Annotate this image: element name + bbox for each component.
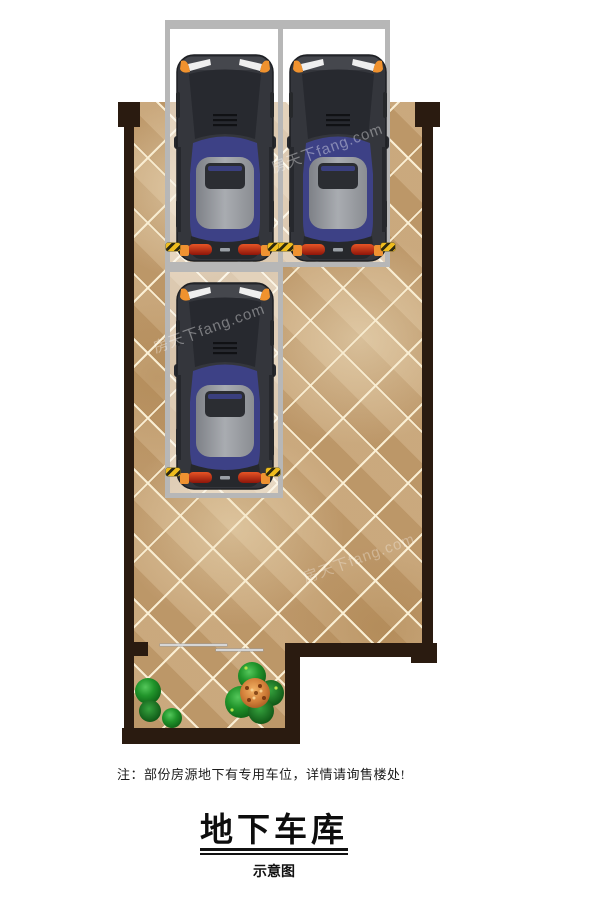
wall-right	[422, 102, 433, 663]
courtyard-plants	[128, 660, 298, 732]
wall-middle-left-stub	[124, 642, 148, 656]
flowering-shrub-icon	[225, 662, 284, 724]
page: 房天下fang.com 房天下fang.com 房天下fang.com 注：部份…	[0, 0, 600, 900]
car-top-view-2-icon	[287, 52, 389, 264]
subtitle: 示意图	[114, 861, 434, 881]
wall-middle-right-cap	[411, 643, 437, 663]
shrub-icon	[135, 678, 182, 728]
page-title: 地下车库	[114, 803, 434, 851]
door-line-2	[216, 649, 263, 651]
wheel-stop	[266, 468, 280, 476]
door-line-1	[160, 644, 227, 646]
title-underline	[200, 848, 348, 855]
wheel-stop	[166, 243, 180, 251]
note-text: 注：部份房源地下有专用车位，详情请询售楼处!	[117, 764, 405, 783]
wheel-stop	[166, 468, 180, 476]
wheel-stop	[381, 243, 395, 251]
car-top-view-1-icon	[174, 52, 276, 264]
car-top-view-3-icon	[174, 280, 276, 492]
wheel-stop	[279, 243, 293, 251]
